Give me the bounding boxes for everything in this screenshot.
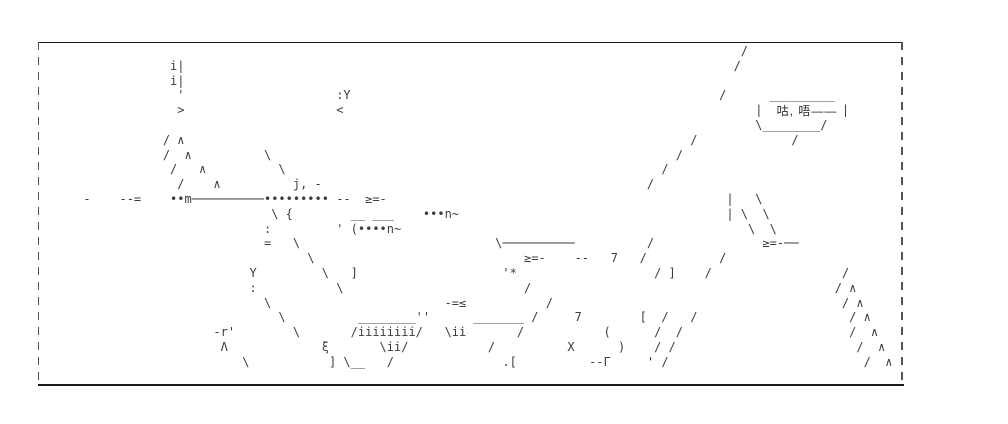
- frame-left-border: [38, 42, 39, 386]
- frame-top-border: [38, 42, 903, 43]
- frame-right-border: [901, 42, 903, 386]
- frame-bottom-border: [38, 384, 904, 386]
- ascii-art: / i| / i| ' :Y: [40, 44, 893, 370]
- speech-bubble-text: 咕, 唔——: [762, 101, 852, 121]
- aa-canvas: / i| / i| ' :Y: [0, 0, 1008, 424]
